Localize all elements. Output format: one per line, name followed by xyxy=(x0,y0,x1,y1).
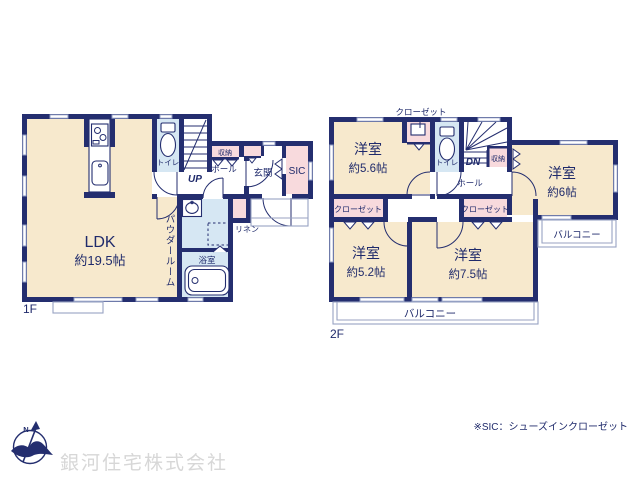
linen-label: リネン xyxy=(235,225,259,234)
room-sw-label: 洋室 xyxy=(352,245,380,261)
room-s-size-label: 約7.5帖 xyxy=(449,267,488,281)
floor-label-2f: 2F xyxy=(330,327,344,341)
balcony-east-label: バルコニー xyxy=(553,230,600,241)
floor-label-1f: 1F xyxy=(23,302,37,316)
toilet-icon-1f xyxy=(161,123,176,157)
floor-plan-1f: LDK 約19.5帖 トイレ UP ホール 収納 玄関 SIC パウダールーム … xyxy=(22,114,313,316)
compass-north-icon: N xyxy=(11,421,53,464)
kitchen-counter xyxy=(89,119,110,192)
room-e-size-label: 約6帖 xyxy=(547,185,576,199)
toilet-label-2f: トイレ xyxy=(436,158,459,167)
vanity-sink-icon xyxy=(183,200,202,217)
ldk-size-label: 約19.5帖 xyxy=(74,253,125,268)
stove-icon xyxy=(92,124,109,146)
entrance-label: 玄関 xyxy=(253,167,272,179)
sic-note: ※SIC：シューズインクローゼット xyxy=(473,420,628,433)
floor-plan-drawing: LDK 約19.5帖 トイレ UP ホール 収納 玄関 SIC パウダールーム … xyxy=(0,0,640,480)
floor-plan-2f: クローゼット 洋室 約5.6帖 トイレ DN 収納 ホール 洋室 約6帖 クロー… xyxy=(329,107,618,341)
kitchen-sink-icon xyxy=(92,161,108,185)
closet-top-label: クローゼット xyxy=(395,107,446,117)
room-s-label: 洋室 xyxy=(454,247,482,263)
closet-center-label: クローゼット xyxy=(461,204,509,214)
room-nw-label: 洋室 xyxy=(354,141,382,157)
balcony-south-label: バルコニー xyxy=(404,308,456,320)
floor-plan-page: LDK 約19.5帖 トイレ UP ホール 収納 玄関 SIC パウダールーム … xyxy=(0,0,640,480)
stairs-up-label: UP xyxy=(188,174,202,185)
sic-label: SIC xyxy=(289,166,306,177)
company-watermark: 銀河住宅株式会社 xyxy=(60,452,228,474)
hall-label-1f: ホール xyxy=(211,164,237,174)
room-nw-size-label: 約5.6帖 xyxy=(349,161,388,175)
bathtub-icon xyxy=(185,266,229,295)
porch-outline xyxy=(251,199,308,226)
storage-label-1f: 収納 xyxy=(218,148,232,157)
storage-label-2f: 収納 xyxy=(491,154,505,163)
toilet-icon-2f xyxy=(440,127,455,160)
room-e-label: 洋室 xyxy=(548,165,576,181)
powder-room-label: パウダールーム xyxy=(164,214,176,288)
closet-left-label: クローゼット xyxy=(334,204,382,214)
bath-label: 浴室 xyxy=(198,255,216,265)
hall-label-2f: ホール xyxy=(457,178,483,188)
terrace-outline xyxy=(53,302,103,313)
toilet-label-1f: トイレ xyxy=(157,158,180,167)
stairs-down-label: DN xyxy=(466,157,481,168)
room-sw-size-label: 約5.2帖 xyxy=(347,265,386,279)
compass-n-label: N xyxy=(23,425,28,434)
ldk-label: LDK xyxy=(84,234,115,251)
